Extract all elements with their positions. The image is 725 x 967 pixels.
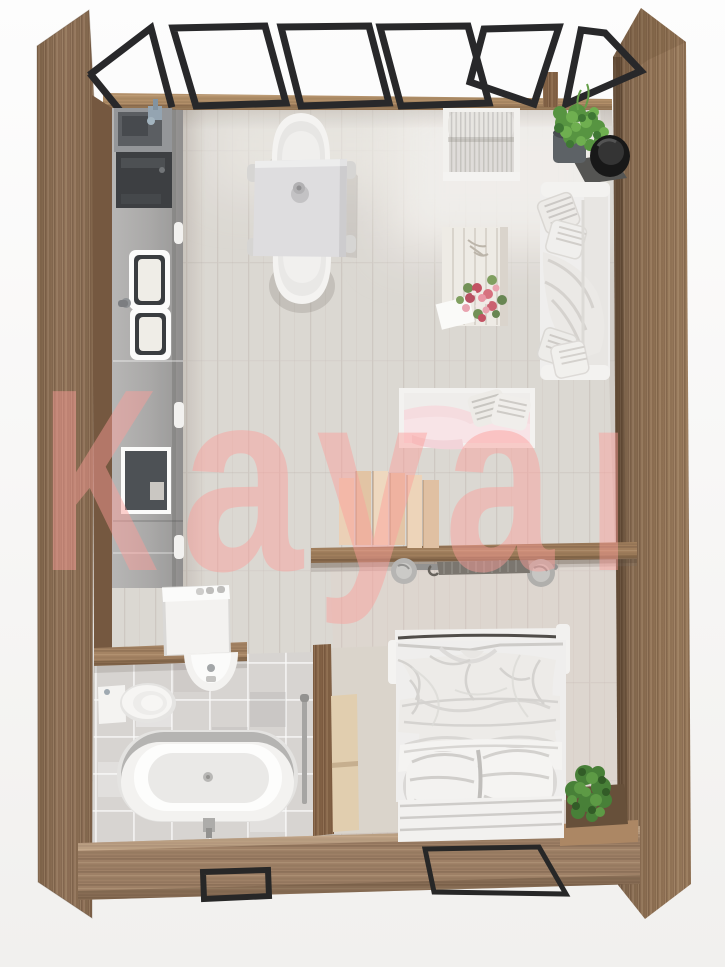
svg-text:a: a (445, 335, 556, 625)
svg-text:a: a (181, 334, 305, 625)
svg-text:y: y (316, 335, 428, 625)
svg-text:K: K (42, 334, 158, 625)
